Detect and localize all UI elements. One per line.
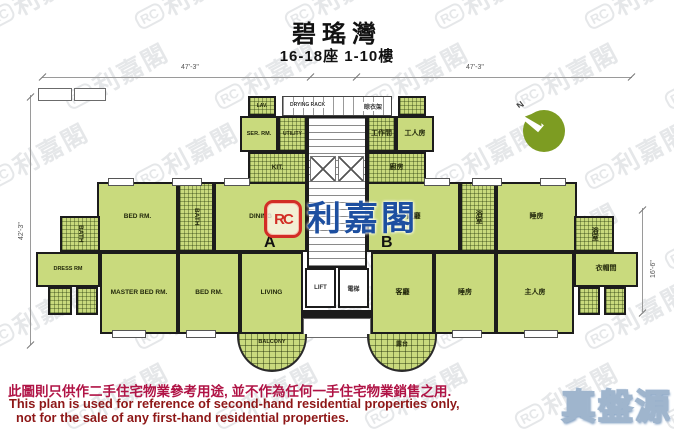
compass: N xyxy=(517,102,569,154)
room-a-kitchen: KIT. xyxy=(248,152,307,184)
watermark-rc-icon: RC xyxy=(0,321,16,351)
room-b-bath2: 浴室 xyxy=(574,216,614,252)
room-a-bath2: BATH xyxy=(60,216,100,252)
watermark-text: 利嘉閣 xyxy=(606,114,674,184)
ac-platform xyxy=(74,88,106,101)
agency-name: 利嘉閣 xyxy=(307,202,418,236)
drying-rack-label-zh: 晾衣架 xyxy=(363,102,383,111)
room-a-utility: UTILITY xyxy=(278,116,307,152)
core-wall xyxy=(303,310,371,318)
room-b-balcony: 露台 xyxy=(367,334,437,372)
disclaimer-en-line1: This plan is used for reference of secon… xyxy=(9,396,460,411)
room-a-bed2: BED RM. xyxy=(178,252,240,334)
dim-left: 42'-3" xyxy=(18,222,25,240)
window xyxy=(452,330,482,338)
lift-lobby xyxy=(303,318,371,338)
room-b-dress: 衣帽間 xyxy=(574,252,638,287)
dim-line-left xyxy=(30,95,31,345)
room-b-bed2: 睡房 xyxy=(434,252,496,334)
watermark-rc-icon: RC xyxy=(662,241,674,271)
room-b-kitchen: 廚房 xyxy=(367,152,426,184)
drying-rack-label-en: DRYING RACK xyxy=(289,102,326,108)
window xyxy=(540,178,566,186)
room-a-lav: LAV. xyxy=(248,96,276,116)
room-b-bed1: 睡房 xyxy=(496,182,577,252)
room-a-dress: DRESS RM xyxy=(36,252,100,287)
closet xyxy=(48,287,72,315)
room-a-ser-rm: SER. RM. xyxy=(240,116,278,152)
room-b-lav xyxy=(398,96,426,116)
window xyxy=(524,330,558,338)
dim-right: 16'-6" xyxy=(650,260,657,278)
room-b-master: 主人房 xyxy=(496,252,574,334)
watermark-item: RC利嘉閣 xyxy=(578,114,674,199)
room-b-living: 客廳 xyxy=(371,252,434,334)
watermark-rc-icon: RC xyxy=(582,161,616,191)
watermark-text: 利嘉閣 xyxy=(156,114,244,184)
window xyxy=(112,330,146,338)
watermark-rc-icon: RC xyxy=(0,161,16,191)
closet xyxy=(578,287,600,315)
staircase xyxy=(307,116,367,268)
room-a-bath1: BATH xyxy=(178,182,214,252)
floor-plan-page: RC利嘉閣RC利嘉閣RC利嘉閣RC利嘉閣RC利嘉閣RC利嘉閣RC利嘉閣RC利嘉閣… xyxy=(0,0,674,430)
lift-a: LIFT xyxy=(305,268,336,308)
window xyxy=(108,178,134,186)
room-a-balcony: BALCONY xyxy=(237,334,307,372)
stair-cross xyxy=(310,156,336,182)
room-a-master: MASTER BED RM. xyxy=(100,252,178,334)
window xyxy=(172,178,202,186)
watermark-rc-icon: RC xyxy=(212,81,246,111)
page-subtitle: 16-18座 1-10樓 xyxy=(0,45,674,66)
room-b-servant: 工人房 xyxy=(396,116,434,152)
room-b-work: 工作間 xyxy=(367,116,396,152)
stair-cross xyxy=(338,156,364,182)
window xyxy=(424,178,450,186)
room-b-bath1: 浴室 xyxy=(460,182,496,252)
lift-b: 電梯 xyxy=(338,268,369,308)
agency-logo: RC 利嘉閣 xyxy=(264,200,418,238)
closet xyxy=(76,287,98,315)
watermark-item: RC利嘉閣 xyxy=(0,114,95,199)
rc-monogram-icon: RC xyxy=(264,200,302,238)
closet xyxy=(604,287,626,315)
page-title: 碧瑤灣 xyxy=(0,14,674,49)
dim-line-right xyxy=(642,208,643,312)
compass-arrow-icon xyxy=(524,110,541,127)
room-a-living: LIVING xyxy=(240,252,303,334)
room-a-bed1: BED RM. xyxy=(97,182,178,252)
window xyxy=(186,330,216,338)
ac-platform xyxy=(38,88,72,101)
window xyxy=(224,178,250,186)
disclaimer-en-line2: not for the sale of any first-hand resid… xyxy=(16,410,349,425)
watermark-rc-icon: RC xyxy=(512,401,546,430)
dim-line-top xyxy=(42,77,632,78)
watermark-rc-icon: RC xyxy=(582,321,616,351)
watermark-rc-icon: RC xyxy=(662,81,674,111)
watermark-item: RC利嘉閣 xyxy=(658,194,674,279)
watermark-text: 利嘉閣 xyxy=(6,114,94,184)
drying-rack: DRYING RACK 晾衣架 xyxy=(282,96,392,116)
window xyxy=(472,178,502,186)
property-source-badge: 真盤源 xyxy=(561,379,672,430)
